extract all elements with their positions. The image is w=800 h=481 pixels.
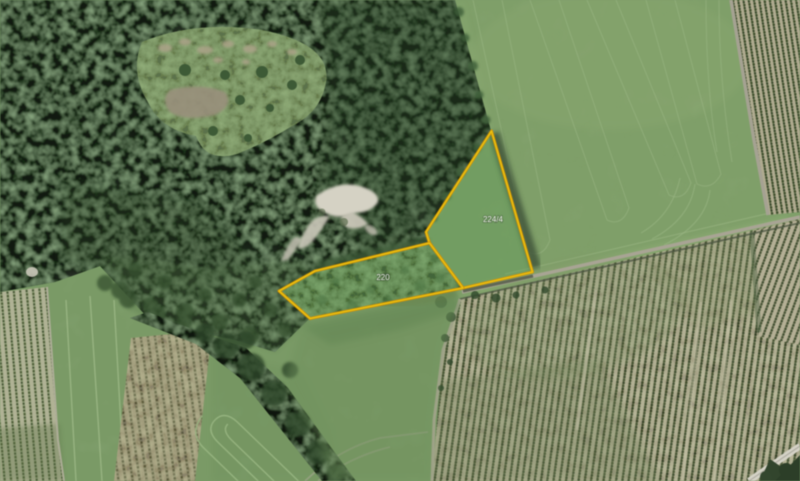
- svg-text:220: 220: [376, 273, 390, 282]
- svg-text:224/4: 224/4: [483, 215, 504, 224]
